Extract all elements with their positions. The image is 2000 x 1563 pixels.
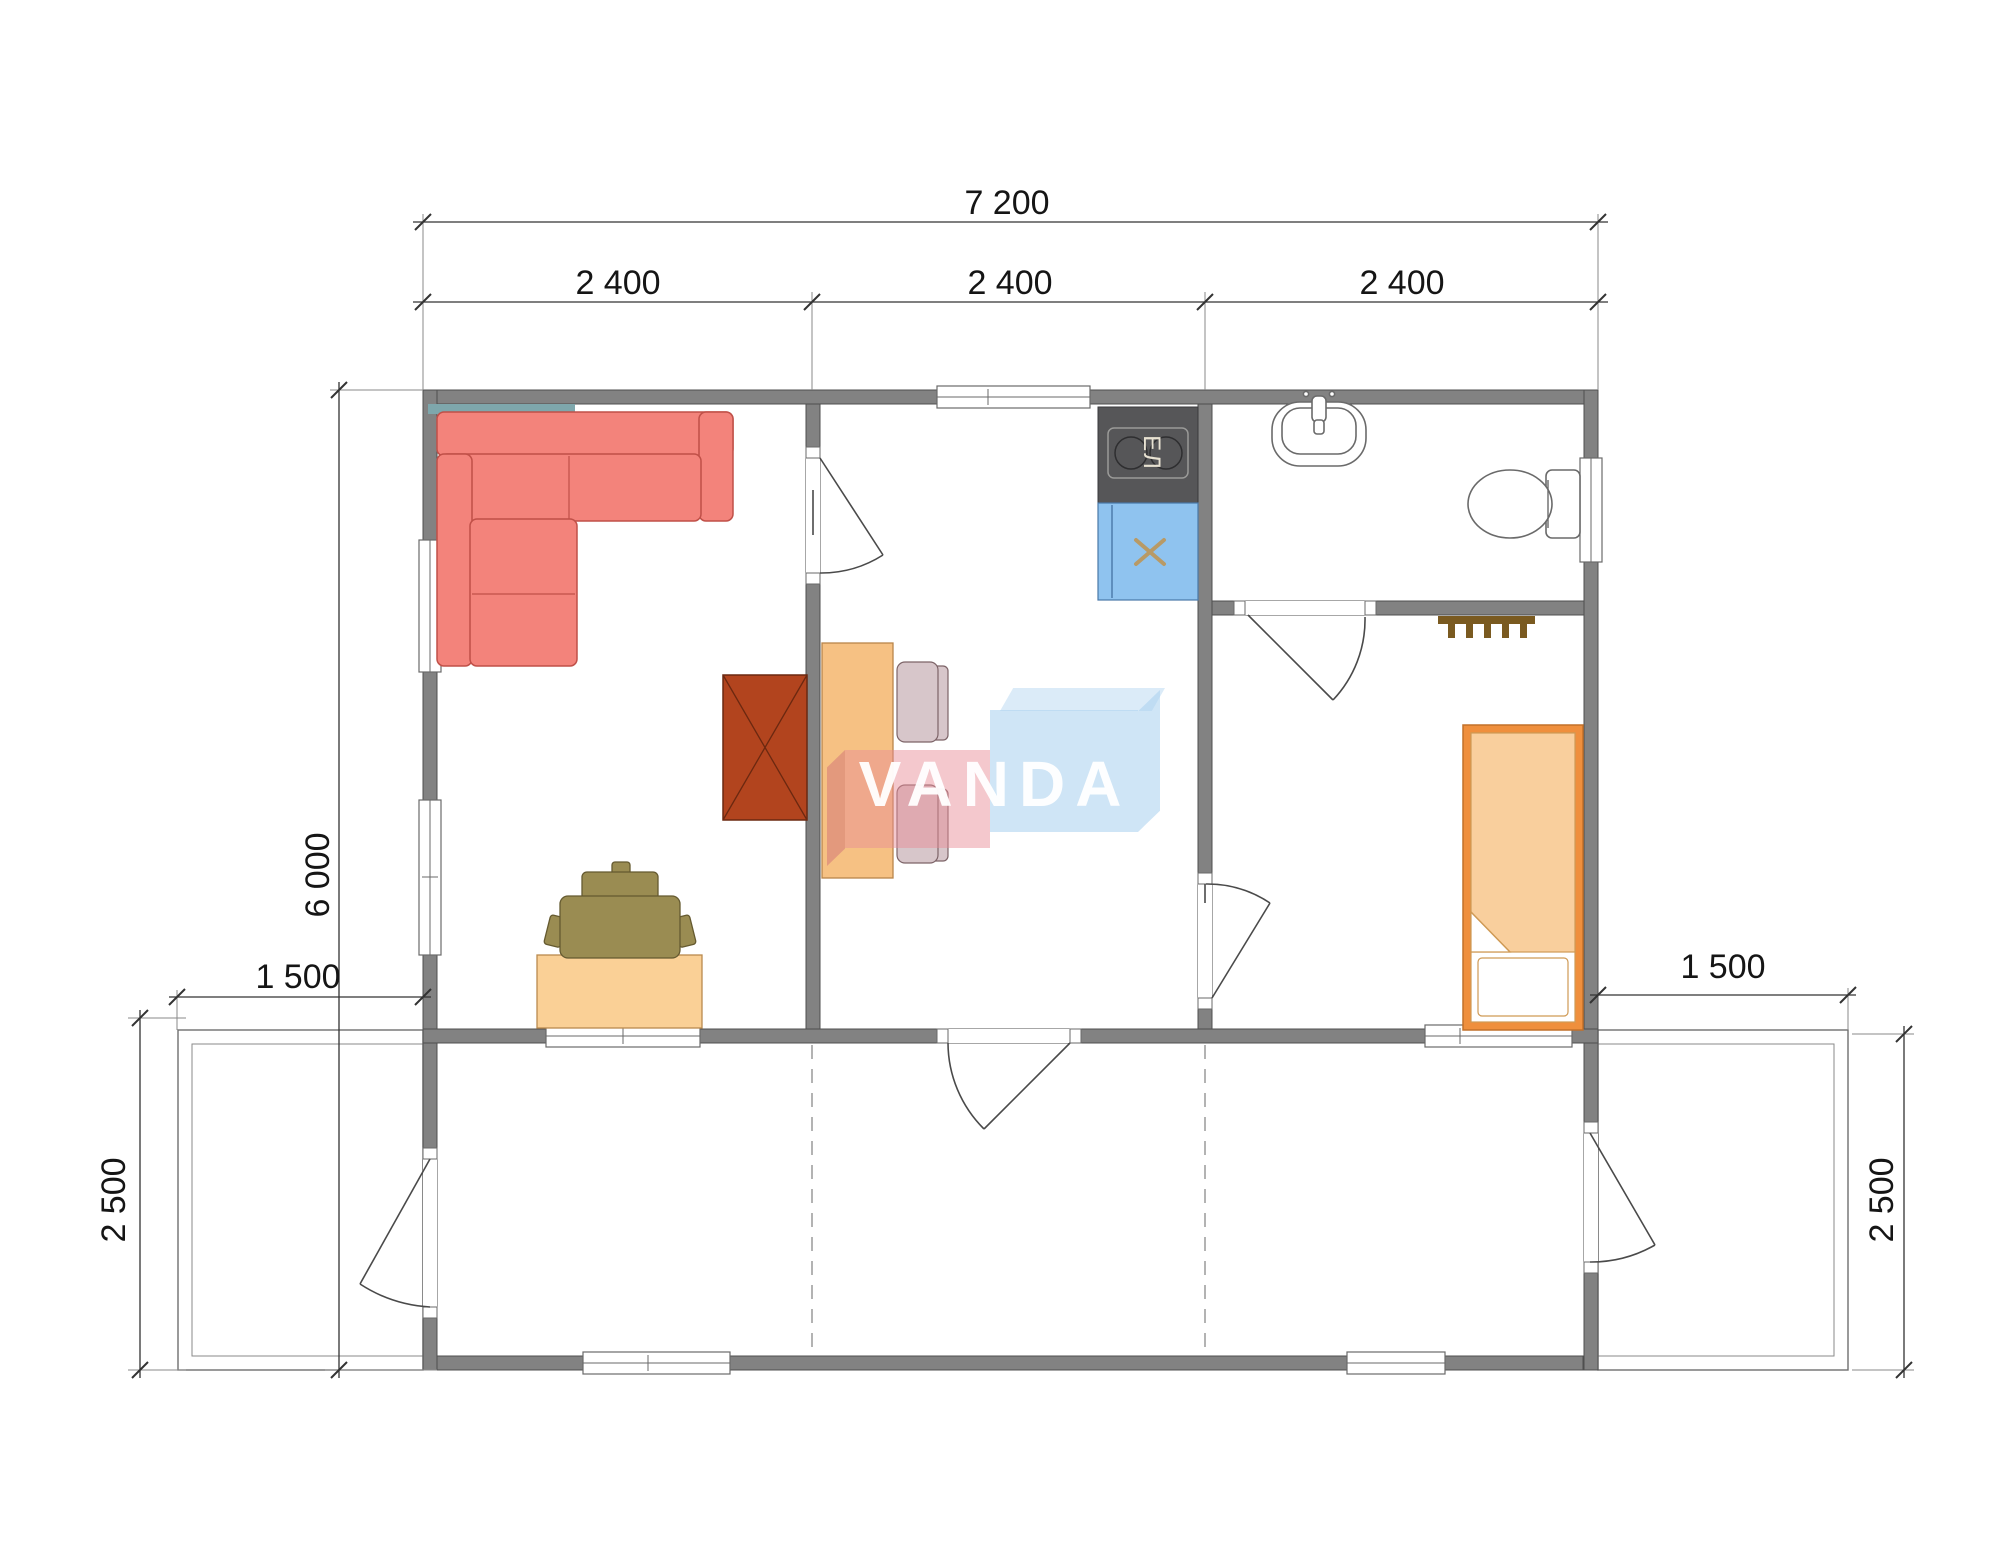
dim-total-depth-label: 6 000 bbox=[301, 785, 335, 965]
floor-plan-page: 7 200 2 400 2 400 2 400 6 000 1 500 1 50… bbox=[0, 0, 2000, 1563]
wardrobe bbox=[723, 675, 807, 820]
door-bathroom bbox=[1248, 615, 1365, 700]
toilet bbox=[1468, 470, 1580, 538]
stove-type-label: ЕЛ bbox=[1131, 433, 1165, 473]
dim-module-1-label: 2 400 bbox=[528, 266, 708, 300]
kitchen-sink bbox=[1098, 503, 1198, 600]
door-living-to-hall bbox=[813, 458, 883, 573]
sofa bbox=[437, 412, 733, 666]
terrace-right bbox=[1598, 1030, 1848, 1370]
window-right-bathroom bbox=[1580, 458, 1602, 562]
desk bbox=[537, 955, 702, 1028]
window-veranda-right bbox=[1347, 1352, 1445, 1374]
door-veranda-right bbox=[1590, 1133, 1655, 1262]
watermark-logo-text: VANDA bbox=[845, 752, 1145, 816]
dim-module-2-label: 2 400 bbox=[920, 266, 1100, 300]
dim-terrace-left-width-label: 1 500 bbox=[208, 960, 388, 994]
dim-terrace-right-width-label: 1 500 bbox=[1633, 950, 1813, 984]
terrace-left bbox=[178, 1030, 423, 1370]
window-veranda-left bbox=[583, 1352, 730, 1374]
desk-chair bbox=[544, 862, 697, 958]
door-veranda-left bbox=[360, 1159, 430, 1307]
dining-chair-top bbox=[897, 662, 948, 742]
door-main-entrance bbox=[948, 1043, 1070, 1129]
dim-terrace-right-depth-label: 2 500 bbox=[1865, 1110, 1899, 1290]
window-left-lower bbox=[419, 800, 441, 955]
watermark-pink-bevel bbox=[827, 750, 845, 866]
dim-total-width-label: 7 200 bbox=[917, 186, 1097, 220]
towel-rail bbox=[1438, 616, 1535, 638]
door-bedroom bbox=[1205, 884, 1270, 998]
watermark-blue-bevel-top bbox=[1000, 688, 1165, 711]
bed bbox=[1463, 725, 1583, 1030]
dim-terrace-left-depth-label: 2 500 bbox=[97, 1110, 131, 1290]
window-top-kitchen bbox=[937, 386, 1090, 408]
dim-module-3-label: 2 400 bbox=[1312, 266, 1492, 300]
